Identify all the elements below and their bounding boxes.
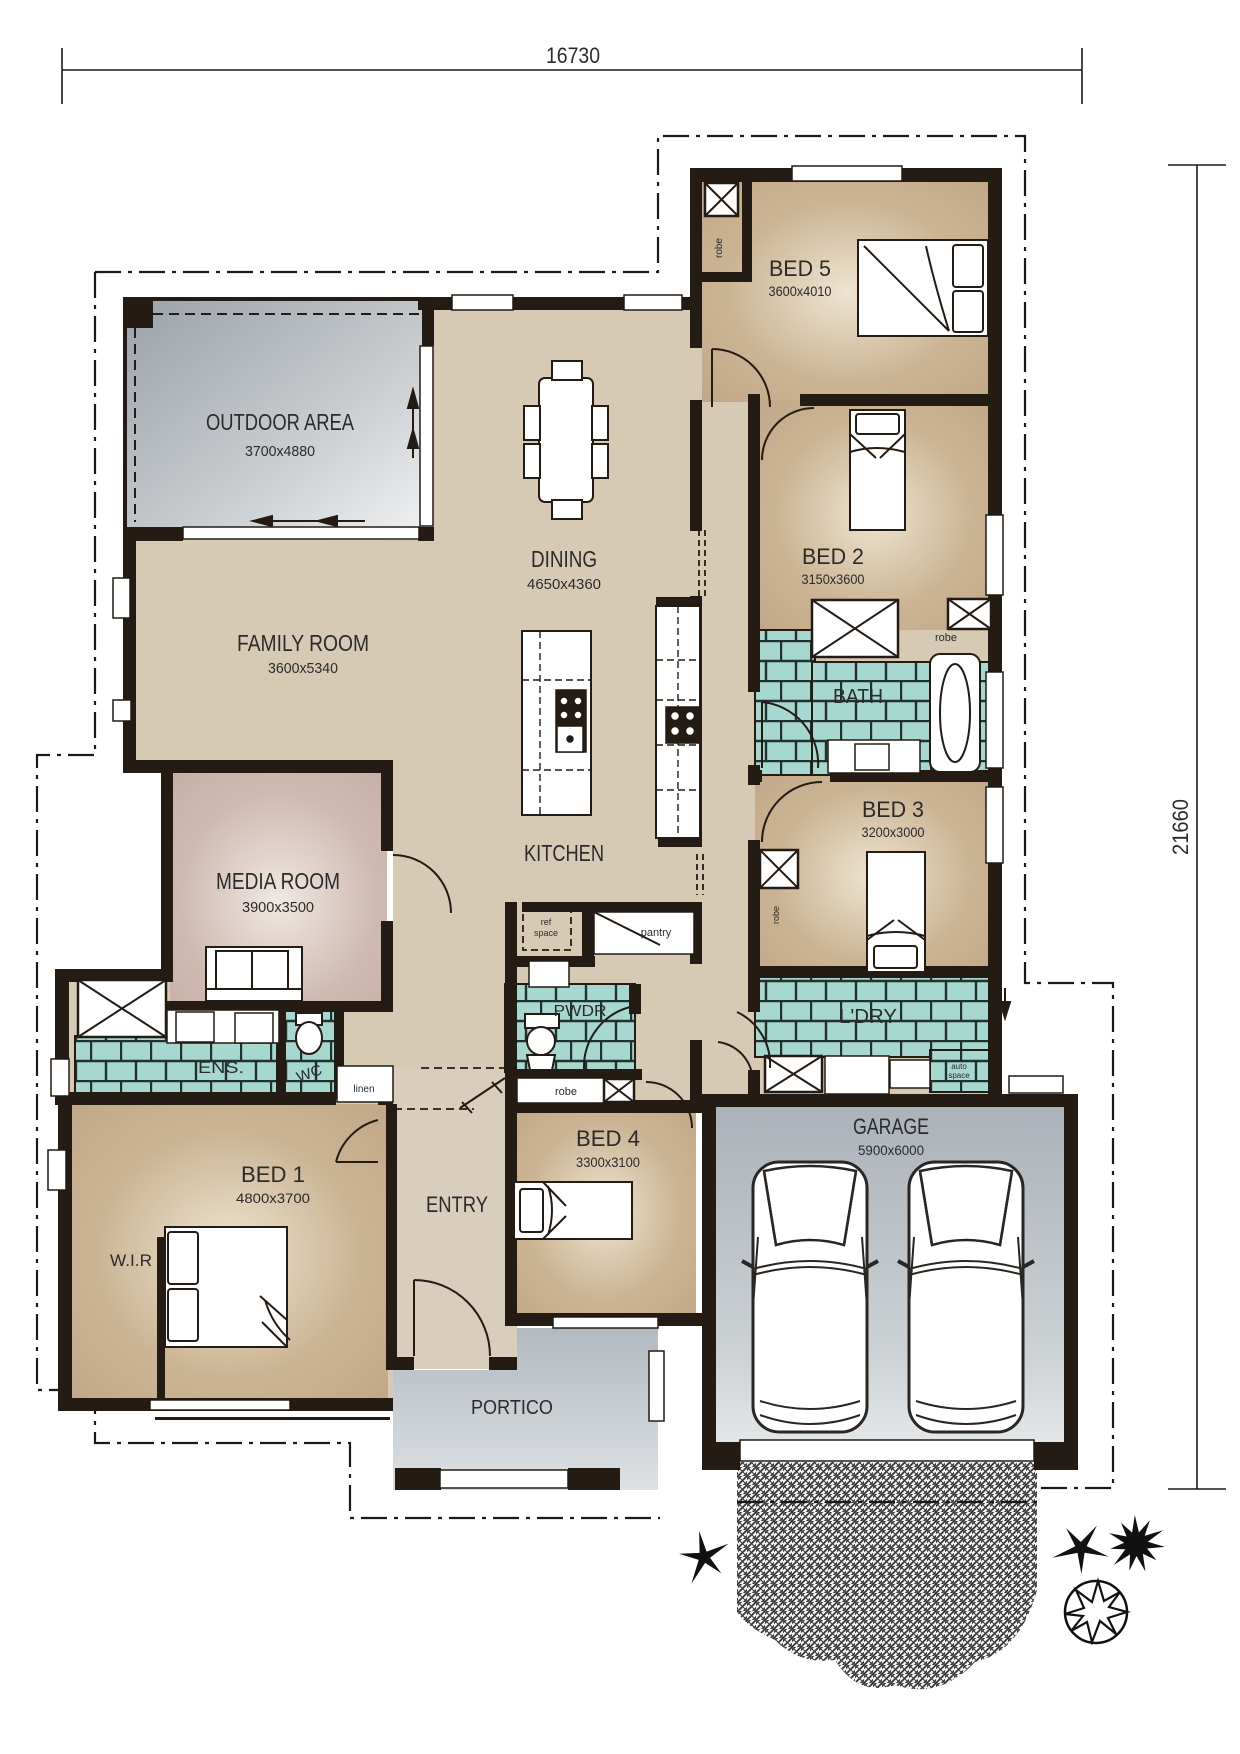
svg-text:pantry: pantry: [641, 927, 672, 939]
svg-text:3600x4010: 3600x4010: [769, 284, 832, 299]
svg-text:space: space: [948, 1071, 970, 1080]
svg-text:L'DRY: L'DRY: [839, 1006, 897, 1028]
svg-text:16730: 16730: [546, 43, 600, 68]
svg-text:FAMILY ROOM: FAMILY ROOM: [237, 630, 369, 656]
svg-text:3700x4880: 3700x4880: [245, 444, 315, 460]
svg-text:PWDR: PWDR: [554, 1003, 607, 1020]
svg-text:BED 4: BED 4: [576, 1126, 640, 1151]
svg-text:auto: auto: [951, 1062, 967, 1071]
svg-text:DINING: DINING: [531, 546, 597, 572]
svg-text:ENTRY: ENTRY: [426, 1192, 488, 1217]
svg-text:ENS.: ENS.: [198, 1058, 244, 1077]
svg-text:ref: ref: [541, 917, 552, 927]
svg-text:GARAGE: GARAGE: [853, 1114, 929, 1139]
svg-text:robe: robe: [714, 238, 725, 258]
svg-text:21660: 21660: [1168, 799, 1193, 855]
svg-text:3300x3100: 3300x3100: [576, 1155, 640, 1170]
svg-text:W.I.R: W.I.R: [110, 1251, 152, 1270]
svg-text:3200x3000: 3200x3000: [862, 825, 925, 840]
svg-text:BED 5: BED 5: [769, 256, 831, 281]
svg-text:OUTDOOR AREA: OUTDOOR AREA: [206, 409, 355, 435]
svg-text:robe: robe: [555, 1086, 577, 1098]
svg-text:robe: robe: [771, 906, 781, 924]
svg-text:BED 3: BED 3: [862, 797, 924, 822]
svg-text:4650x4360: 4650x4360: [527, 577, 601, 593]
svg-text:KITCHEN: KITCHEN: [524, 840, 604, 866]
svg-text:5900x6000: 5900x6000: [858, 1143, 924, 1158]
svg-text:3900x3500: 3900x3500: [242, 900, 314, 916]
svg-text:3600x5340: 3600x5340: [268, 661, 338, 677]
svg-text:PORTICO: PORTICO: [471, 1397, 553, 1419]
svg-text:MEDIA ROOM: MEDIA ROOM: [216, 868, 340, 894]
svg-text:linen: linen: [353, 1084, 374, 1095]
svg-text:BED 1: BED 1: [241, 1162, 305, 1187]
svg-text:BED 2: BED 2: [802, 544, 864, 569]
svg-text:robe: robe: [935, 632, 957, 644]
svg-text:BATH: BATH: [833, 686, 883, 708]
svg-text:space: space: [534, 928, 558, 938]
svg-text:4800x3700: 4800x3700: [236, 1191, 310, 1206]
svg-text:3150x3600: 3150x3600: [802, 572, 865, 587]
